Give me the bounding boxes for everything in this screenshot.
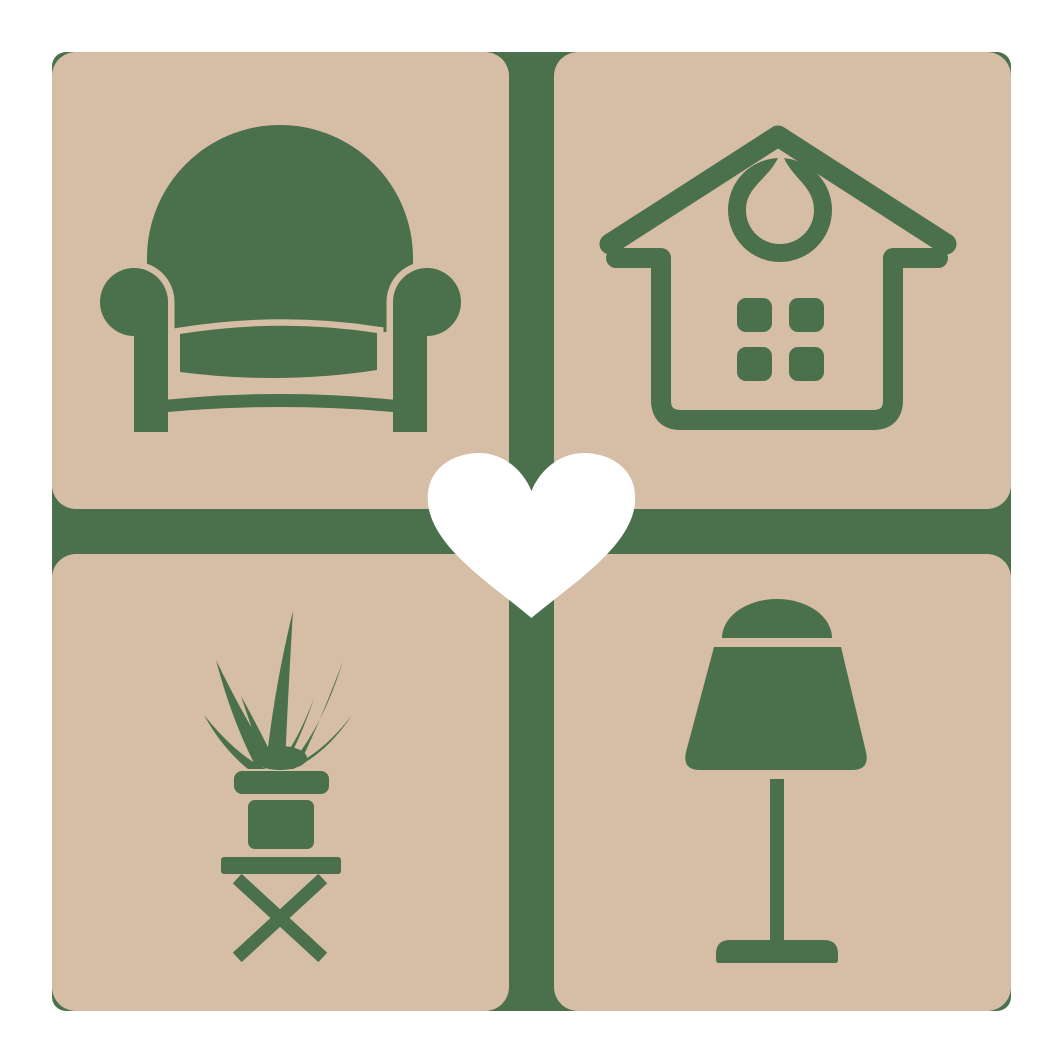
window-pane bbox=[789, 347, 824, 381]
house-walls bbox=[616, 258, 938, 420]
stool-seat bbox=[221, 857, 341, 874]
house-window-icon bbox=[737, 298, 824, 381]
armchair-skirt bbox=[138, 394, 423, 415]
house-icon bbox=[554, 52, 1011, 509]
lamp-base bbox=[716, 940, 838, 963]
window-pane bbox=[789, 298, 824, 332]
window-pane bbox=[737, 347, 772, 381]
logo-canvas bbox=[0, 0, 1063, 1063]
armchair-cushion bbox=[180, 326, 377, 378]
window-pane bbox=[737, 298, 772, 332]
armchair-icon bbox=[52, 52, 509, 509]
heart-icon bbox=[423, 448, 640, 623]
lamp-cap bbox=[722, 599, 832, 638]
lamp-stem bbox=[770, 779, 784, 944]
tile-house bbox=[554, 52, 1011, 509]
tile-armchair bbox=[52, 52, 509, 509]
pot-body bbox=[248, 800, 314, 849]
armchair-back bbox=[147, 125, 413, 332]
pot-rim bbox=[234, 771, 329, 794]
stool-legs bbox=[242, 883, 318, 953]
lamp-shade bbox=[685, 647, 866, 770]
plant-leaves bbox=[204, 611, 352, 770]
